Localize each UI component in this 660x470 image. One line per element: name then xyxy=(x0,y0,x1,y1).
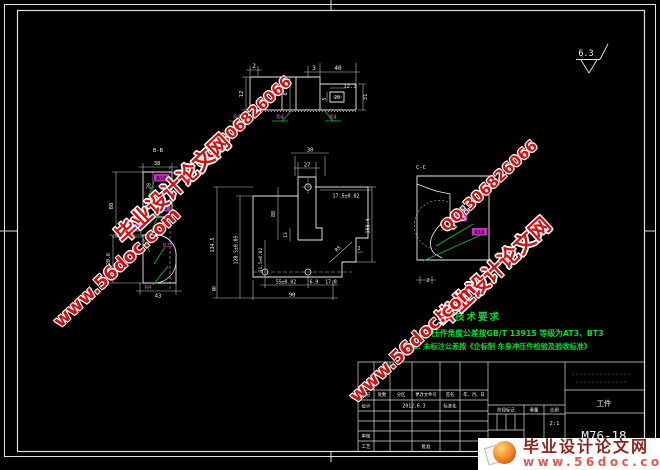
dim-11-5: 11.5±0.02 xyxy=(258,248,264,273)
part-name: 工件 xyxy=(597,398,612,408)
th-zone: 分区 xyxy=(397,391,406,398)
dim-40: 40 xyxy=(334,65,342,72)
fillet-label-r25: R25 xyxy=(163,243,173,249)
dim-3: 3 xyxy=(312,65,316,72)
section-b-label: B-B xyxy=(153,148,164,154)
dim-27: 27 xyxy=(304,163,311,169)
dim-30: 30 xyxy=(307,148,314,154)
th-change-doc: 更改文件号 xyxy=(415,391,436,398)
cell-process: 工艺 xyxy=(362,444,371,450)
cell-approve: 批准 xyxy=(422,443,431,450)
fillet-label-r10: R10 xyxy=(475,230,485,236)
dim-2: 2 xyxy=(252,63,256,70)
banner-url: www.56doc.com xyxy=(523,456,660,469)
th-count: 处数 xyxy=(378,391,387,398)
th-signature: 签名 xyxy=(446,391,455,398)
banner-text: 毕业设计论文网 www.56doc.com xyxy=(523,439,660,468)
banner-title: 毕业设计论文网 xyxy=(523,439,660,456)
section-c-label: C-C xyxy=(416,165,426,171)
th-date: 年、月、日 xyxy=(463,391,484,398)
dim-20: 20 xyxy=(334,95,340,101)
dim-12: 12 xyxy=(239,91,245,98)
dim-88: 88 xyxy=(109,203,115,210)
logo-sphere-icon xyxy=(493,441,516,464)
dim-43: 43 xyxy=(155,294,162,300)
front-view-dim-lines xyxy=(213,153,376,300)
centering-marks xyxy=(0,0,656,462)
cell-date: 2012.6.3 xyxy=(402,404,425,410)
fillet-label-r4: R4 xyxy=(276,114,284,121)
dim-31: 31 xyxy=(363,94,369,101)
surface-finish-symbol: 6.3 xyxy=(576,44,608,73)
dim-17-8: 17.8 xyxy=(325,280,337,286)
outer-border xyxy=(5,5,656,457)
dim-2: 2 xyxy=(357,246,360,252)
section-b-inner-arc xyxy=(156,262,176,283)
dim-134-5: 134.5 xyxy=(210,237,216,252)
dim-13: 13 xyxy=(283,232,289,238)
front-view-outline xyxy=(253,177,368,277)
fillet-label-r5: R5 xyxy=(334,245,342,253)
dim-38: 38 xyxy=(154,161,161,167)
surface-finish-value: 6.3 xyxy=(578,49,593,59)
sheet-border xyxy=(0,0,656,462)
dim-12-3: 12.3 xyxy=(343,84,356,90)
site-logo-icon xyxy=(486,439,516,469)
dim-55: 55±0.02 xyxy=(276,280,296,286)
th-weight: 重量 xyxy=(530,407,539,414)
dim-108-4: 108.4 xyxy=(366,218,372,233)
th-scale: 比例 xyxy=(550,407,559,414)
tech-req-item-2: 2. 未标注公差按《企标制 车身冲压件检验及验收标准》 xyxy=(413,342,591,351)
dim-5: 5 xyxy=(322,97,328,100)
fillet-label-r4: R4 xyxy=(329,114,337,121)
cell-standardize: 标准化 xyxy=(444,403,458,410)
faint-company-text xyxy=(572,374,630,382)
th-stage-mark: 阶段标记 xyxy=(497,407,515,414)
section-arrow-label-b: B xyxy=(212,285,216,293)
cad-drawing-canvas: 6.3 2 3 40 12.3 20 5 31 12 8 R4 R4 R4 B-… xyxy=(0,0,660,470)
fillet-label-r4: R4 xyxy=(145,285,152,291)
front-view: 30 27 17.5±0.02 108.4 134.5 128.5±0.05 8… xyxy=(210,148,376,301)
dim-90: 90 xyxy=(289,293,296,299)
cell-check: 审核 xyxy=(362,433,371,440)
dim-6-9: 6.9 xyxy=(310,280,319,286)
dim-2: 2 xyxy=(426,278,429,284)
site-banner: 毕业设计论文网 www.56doc.com xyxy=(478,438,660,470)
dim-128-5: 128.5±0.05 xyxy=(234,235,240,264)
drawing-sheet: 6.3 2 3 40 12.3 20 5 31 12 8 R4 R4 R4 B-… xyxy=(0,0,660,470)
scale-value: 2:1 xyxy=(550,421,560,427)
dim-17-5: 17.5±0.02 xyxy=(332,194,359,200)
dim-88: 88 xyxy=(271,211,277,217)
